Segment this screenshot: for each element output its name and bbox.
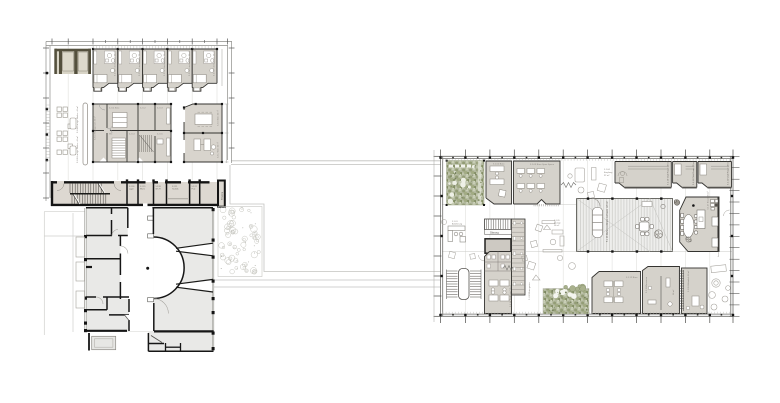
svg-text:5.1.10 Club Raum 30 m²: 5.1.10 Club Raum 30 m² xyxy=(667,161,670,185)
svg-text:58 m²: 58 m² xyxy=(554,224,559,227)
svg-text:5.1.04: 5.1.04 xyxy=(604,169,611,171)
svg-text:28 m²: 28 m² xyxy=(672,289,675,295)
svg-text:5.1.03 Büro Open Space: 5.1.03 Büro Open Space xyxy=(530,163,555,166)
svg-text:5.2.01 Hotelzimmer 19 m²: 5.2.01 Hotelzimmer 19 m² xyxy=(113,51,116,76)
svg-text:5.1.02 Büro: 5.1.02 Büro xyxy=(493,163,505,166)
svg-text:Empfang: Empfang xyxy=(604,172,613,174)
svg-text:WC H: WC H xyxy=(156,189,162,191)
svg-text:5.2.08 Lounge Wohnz. 44 m²: 5.2.08 Lounge Wohnz. 44 m² xyxy=(76,106,79,133)
svg-text:Lager: Lager xyxy=(129,188,134,191)
svg-text:5.2.11 Büro: 5.2.11 Büro xyxy=(109,108,120,110)
svg-text:5.2.10 Tagungsraum 44 m²: 5.2.10 Tagungsraum 44 m² xyxy=(94,116,97,140)
svg-text:Putz: Putz xyxy=(192,188,196,191)
svg-text:5.2.09 Lounge Wohnz. 44 m²: 5.2.09 Lounge Wohnz. 44 m² xyxy=(76,136,79,163)
svg-text:5.1.14 Werkstatt 58 m²: 5.1.14 Werkstatt 58 m² xyxy=(509,285,512,307)
svg-text:Lesen: Lesen xyxy=(718,252,720,257)
svg-text:5.2.13: 5.2.13 xyxy=(157,108,163,110)
svg-text:5.1.12 Club Raum 30 m²: 5.1.12 Club Raum 30 m² xyxy=(727,161,730,185)
svg-text:5.2.16 Büro 24 m²: 5.2.16 Büro 24 m² xyxy=(217,110,220,126)
svg-text:5.1.08 Wintergarten: 5.1.08 Wintergarten xyxy=(528,282,531,300)
svg-text:5.2.14: 5.2.14 xyxy=(129,134,135,136)
svg-text:5.1.09 Bibliothek 30 m²: 5.1.09 Bibliothek 30 m² xyxy=(687,270,690,292)
svg-text:32 m²: 32 m² xyxy=(604,174,610,177)
svg-text:5.2.12: 5.2.12 xyxy=(140,108,146,110)
svg-text:WC D: WC D xyxy=(140,189,146,191)
svg-text:5.1.06 Mehrzweckhalle Luftraum: 5.1.06 Mehrzweckhalle Luftraum 120 m² xyxy=(606,201,609,242)
svg-text:Anlieferung: Anlieferung xyxy=(452,223,462,226)
svg-text:5.2.05 Hotelzimmer 19 m²: 5.2.05 Hotelzimmer 19 m² xyxy=(213,51,216,76)
svg-text:5.2.03 Hotelzimmer 19 m²: 5.2.03 Hotelzimmer 19 m² xyxy=(163,51,166,76)
svg-text:WC: WC xyxy=(109,134,113,136)
svg-text:Technik: Technik xyxy=(172,189,178,191)
svg-text:5.1.11 Club Raum 30 m²: 5.1.11 Club Raum 30 m² xyxy=(692,161,695,185)
svg-text:5.1.12 Büro: 5.1.12 Büro xyxy=(626,276,638,279)
svg-text:5.1.11 Klassraum: 5.1.11 Klassraum xyxy=(645,277,648,293)
svg-text:5.2.15: 5.2.15 xyxy=(157,134,163,136)
svg-text:5.1.07 Essen 56 m²: 5.1.07 Essen 56 m² xyxy=(707,191,710,209)
svg-text:5.2.04 Hotelzimmer 19 m²: 5.2.04 Hotelzimmer 19 m² xyxy=(188,51,191,76)
svg-text:5.2.02 Hotelzimmer 19 m²: 5.2.02 Hotelzimmer 19 m² xyxy=(138,51,141,76)
svg-text:Eingang: Eingang xyxy=(222,191,224,200)
svg-text:Sitzung: Sitzung xyxy=(490,230,499,234)
svg-text:5.2.17 Büro 24 m²: 5.2.17 Büro 24 m² xyxy=(217,142,220,158)
